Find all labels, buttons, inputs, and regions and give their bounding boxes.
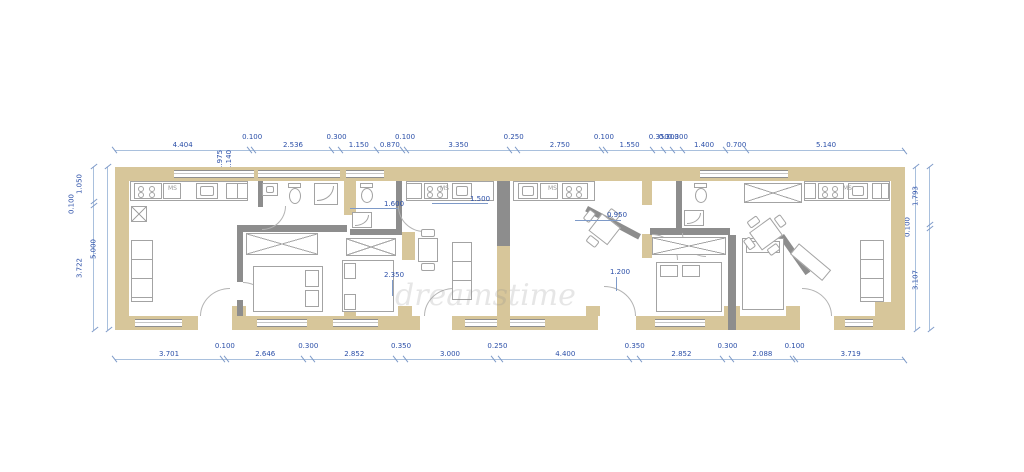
shower-3 (684, 210, 704, 226)
dimension-segment: 2.852 (313, 350, 396, 360)
sofa-4 (860, 240, 884, 302)
dimension-label: 2.536 (283, 142, 303, 149)
dimension-label: 2.852 (671, 351, 691, 358)
dimension-segment: 5.000 (98, 167, 108, 330)
dimension-label: 0.250 (504, 134, 524, 141)
kitchen-cabinet-4 (804, 183, 816, 199)
burner-icon (576, 192, 582, 198)
burner-icon (149, 192, 155, 198)
shower-1 (314, 183, 338, 205)
dimension-label: 3.107 (912, 270, 919, 290)
burner-icon (138, 192, 144, 198)
window-bottom-1 (135, 319, 182, 327)
dimension-label: 1.550 (620, 142, 640, 149)
leader-kitchen2 (432, 203, 488, 204)
dimension-segment: 1.550 (606, 141, 654, 151)
wardrobe-2 (346, 238, 396, 256)
burner-icon (437, 192, 443, 198)
stove-4 (818, 183, 844, 199)
cabinet-1 (131, 206, 147, 222)
shower-2 (352, 212, 372, 228)
dimension-label: 4.400 (555, 351, 575, 358)
toilet-bowl-1 (289, 188, 301, 204)
dimension-label: 0.250 (487, 343, 507, 350)
dimension-label: 4.404 (173, 142, 193, 149)
dimension-chain-right-outer: 1.7930.1003.107 (920, 167, 930, 330)
dimension-label: 2.088 (752, 351, 772, 358)
partition-unit1-horizontal (237, 225, 347, 232)
appliance-label-4: MS (843, 186, 852, 192)
leader-bed3 (616, 277, 617, 291)
room-dim-bed3: 1.200 (610, 268, 630, 276)
door-opening-1 (198, 316, 232, 330)
stove-3 (562, 183, 588, 199)
dimension-segment: 3.350 (407, 141, 510, 151)
dimension-label: 3.719 (841, 351, 861, 358)
dimension-segment: 2.750 (518, 141, 603, 151)
table-2 (418, 238, 438, 262)
dimension-label: 2.646 (255, 351, 275, 358)
dimension-segment: 2.852 (640, 350, 723, 360)
wall-divider-3-mid (642, 234, 652, 258)
chair-2b (421, 263, 435, 271)
wall-stub-5 (786, 306, 800, 316)
pillow-3b (682, 265, 700, 277)
room-dim-bath2: 1.600 (384, 200, 404, 208)
toilet-bowl-2 (361, 188, 373, 203)
dimension-label: 0.100 (68, 194, 75, 214)
dimension-label: 5.000 (90, 238, 97, 258)
bath-sink-1 (262, 183, 278, 196)
door-swing-entry-1 (200, 288, 230, 316)
dimension-segment: 3.107 (920, 229, 930, 330)
dimension-segment: 3.000 (406, 350, 494, 360)
dimension-label: 3.722 (76, 258, 83, 278)
room-dim-kitchen2: 1.500 (470, 195, 490, 203)
dimension-label: 1.150 (349, 142, 369, 149)
pillow-3a (660, 265, 678, 277)
burner-icon (822, 192, 828, 198)
window-top-3 (346, 170, 384, 178)
sink-1 (196, 183, 218, 199)
partition-divider-2-top (497, 181, 510, 246)
dimension-label: 0.100 (904, 217, 911, 237)
sink-2 (452, 183, 472, 199)
dimension-chain-left-total: 5.000 (98, 167, 108, 330)
wall-divider-1-top (344, 181, 356, 215)
dimension-label: 0.300 (327, 134, 347, 141)
partition-bath2-horizontal (350, 229, 398, 235)
dimension-label: 3.000 (440, 351, 460, 358)
dimension-label: 3.701 (159, 351, 179, 358)
dimension-chain-bottom: 3.7010.1002.6460.3002.8520.3503.0000.250… (115, 350, 905, 360)
dimension-label: 0.300 (717, 343, 737, 350)
door-opening-3 (598, 316, 636, 330)
sofa-1 (131, 240, 153, 302)
dimension-label: 0.100 (785, 343, 805, 350)
dimension-label: 0.100 (215, 343, 235, 350)
fridge-1 (226, 183, 248, 199)
kitchen-cabinet-2 (406, 183, 422, 199)
wardrobe-4 (744, 183, 802, 203)
dimension-chain-top: 4.4040.1002.5360.3001.1500.8700.1003.350… (115, 141, 905, 151)
pillow-1b (305, 290, 319, 307)
door-swing-entry-3 (604, 286, 636, 316)
wall-pillar-unit2 (402, 232, 415, 260)
window-top-4 (700, 170, 788, 178)
dimension-label: 1.793 (912, 186, 919, 206)
window-bottom-5 (655, 319, 705, 327)
dimension-label: 2.750 (550, 142, 570, 149)
appliance-label-3: MS (548, 186, 557, 192)
pillow-1a (305, 270, 319, 287)
wall-stub-3 (586, 306, 600, 316)
dimension-segment: 1.400 (683, 141, 726, 151)
dimension-segment: 2.646 (227, 350, 304, 360)
wardrobe-1 (246, 233, 318, 255)
window-top-1 (174, 170, 254, 178)
appliance-label-1: MS (168, 186, 177, 192)
dimension-label: 0.870 (380, 142, 400, 149)
pillow-2a (344, 263, 356, 279)
burner-icon (427, 192, 433, 198)
burner-icon (566, 192, 572, 198)
window-bottom-6 (845, 319, 873, 327)
dimension-label: 0.100 (242, 134, 262, 141)
room-dim-dining3: 0.950 (607, 211, 627, 219)
dimension-segment: 1.793 (920, 167, 930, 225)
appliance-label-2: MS (440, 186, 449, 192)
dimension-label: 0.300 (298, 343, 318, 350)
dimension-label: 2.852 (344, 351, 364, 358)
burner-icon (832, 192, 838, 198)
partition-unit1-vertical (237, 232, 243, 282)
window-bottom-3 (333, 319, 378, 327)
dimension-label: 5.140 (816, 142, 836, 149)
toilet-bowl-3 (695, 188, 707, 203)
dimension-label: 0.100 (395, 134, 415, 141)
wall-corner-bottom-right (875, 302, 905, 330)
dimension-label: 0.100 (594, 134, 614, 141)
fridge-4 (872, 183, 889, 199)
sink-3 (518, 183, 538, 199)
stove-1 (134, 183, 162, 199)
pillow-2b (344, 294, 356, 310)
partition-bath3-vertical (676, 181, 682, 233)
dimension-label: 1.050 (76, 174, 83, 194)
dimension-segment: 1.150 (341, 141, 376, 151)
leader-bath2 (350, 208, 398, 209)
wardrobe-3 (652, 237, 726, 255)
window-bottom-2 (257, 319, 307, 327)
dimension-segment: 3.701 (115, 350, 223, 360)
dimension-segment: 2.088 (732, 350, 793, 360)
window-top-2 (258, 170, 340, 178)
partition-unit3-vertical (728, 235, 736, 330)
floor-plan-drawing: 4.4040.1002.5360.3001.1500.8700.1003.350… (0, 0, 1024, 472)
dimension-label: 1.400 (694, 142, 714, 149)
door-opening-2 (420, 316, 452, 330)
door-swing-entry-4 (802, 288, 832, 316)
dimension-segment: 2.536 (254, 141, 332, 151)
leader-bed2 (392, 280, 393, 296)
dimension-segment: 4.400 (501, 350, 630, 360)
dimension-segment: 1.050 (84, 167, 94, 202)
leader-dining3 (575, 220, 621, 221)
wall-divider-3-top (642, 181, 652, 205)
dimension-label: 0.350 (391, 343, 411, 350)
dimension-label: 0.350 (625, 343, 645, 350)
watermark-text: dreamstime (395, 278, 576, 313)
dining-set-3 (570, 197, 638, 264)
dimension-segment: 3.719 (796, 350, 905, 360)
chair-2a (421, 229, 435, 237)
dimension-segment: 3.722 (84, 206, 94, 330)
dimension-segment: 5.140 (747, 141, 905, 151)
dimension-label: 3.350 (448, 142, 468, 149)
wall-left (115, 167, 129, 330)
door-opening-4 (800, 316, 834, 330)
dimension-label: 0.300 (668, 134, 688, 141)
